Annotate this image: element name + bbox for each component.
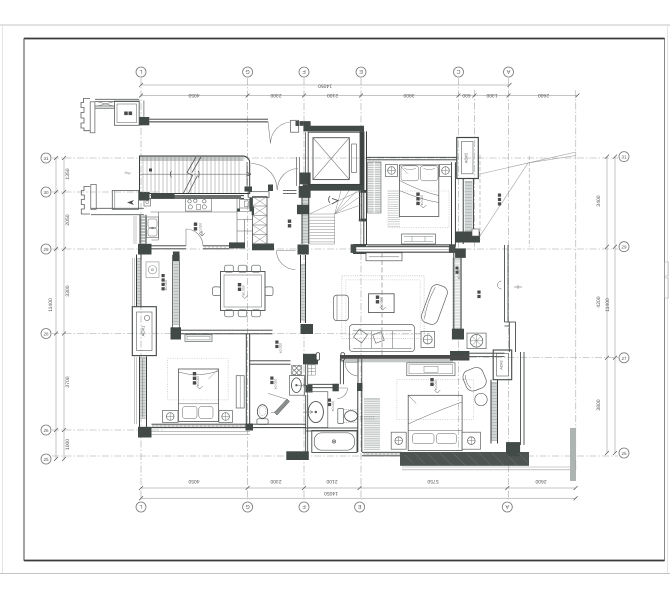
svg-text:4050: 4050: [188, 92, 199, 98]
svg-text:26: 26: [43, 428, 49, 433]
svg-text:L: L: [139, 503, 142, 509]
svg-text:A: A: [505, 503, 509, 509]
svg-text:±0.000: ±0.000: [420, 195, 424, 205]
svg-text:29: 29: [43, 247, 49, 252]
svg-text:600: 600: [462, 92, 471, 98]
svg-text:±0.000: ±0.000: [279, 343, 283, 353]
svg-text:±0.000: ±0.000: [164, 280, 168, 290]
svg-text:5750: 5750: [427, 478, 438, 484]
svg-text:2600: 2600: [538, 92, 549, 98]
svg-text:3400: 3400: [596, 195, 602, 206]
svg-text:E: E: [357, 503, 361, 509]
svg-text:1350: 1350: [65, 168, 71, 179]
svg-text:3700: 3700: [65, 376, 71, 387]
svg-text:±0.000: ±0.000: [196, 376, 200, 386]
svg-text:27: 27: [621, 356, 627, 361]
svg-text:A: A: [506, 68, 510, 74]
svg-text:±0.000: ±0.000: [379, 297, 383, 307]
svg-text:E: E: [359, 68, 363, 74]
svg-text:2300: 2300: [270, 92, 281, 98]
svg-text:L: L: [139, 68, 142, 74]
svg-text:3300: 3300: [65, 285, 71, 296]
svg-text:±0.000: ±0.000: [331, 401, 335, 411]
svg-text:±0.000: ±0.000: [457, 269, 461, 279]
svg-text:C: C: [456, 68, 460, 74]
svg-text:14050: 14050: [324, 490, 338, 496]
svg-text:3800: 3800: [596, 399, 602, 410]
svg-text:11400: 11400: [605, 298, 611, 312]
svg-text:31: 31: [621, 155, 627, 160]
svg-text:±0.000: ±0.000: [434, 380, 438, 390]
svg-text:2100: 2100: [327, 92, 338, 98]
svg-text:2600: 2600: [535, 478, 546, 484]
svg-text:4200: 4200: [596, 296, 602, 307]
svg-text:1300: 1300: [486, 92, 497, 98]
svg-text:3800: 3800: [403, 92, 414, 98]
svg-text:25: 25: [43, 457, 49, 462]
svg-text:AO#1: AO#1: [140, 325, 145, 336]
svg-text:AO#2: AO#2: [499, 360, 503, 369]
svg-text:G: G: [245, 68, 249, 74]
svg-text:1000: 1000: [65, 439, 71, 450]
svg-text:±0.000: ±0.000: [274, 379, 278, 389]
svg-text:2300: 2300: [270, 478, 281, 484]
svg-text:28: 28: [43, 332, 49, 337]
svg-text:14050: 14050: [318, 83, 332, 89]
svg-text:25: 25: [621, 451, 627, 456]
svg-text:±0.000: ±0.000: [241, 285, 245, 295]
svg-text:31: 31: [43, 156, 49, 161]
svg-text:11400: 11400: [48, 298, 54, 312]
svg-text:AO#2: AO#2: [463, 152, 468, 163]
svg-text:4050: 4050: [188, 478, 199, 484]
svg-text:2050: 2050: [65, 214, 71, 225]
svg-text:G: G: [245, 503, 249, 509]
svg-text:2100: 2100: [326, 478, 337, 484]
svg-text:29: 29: [621, 245, 627, 250]
svg-text:30: 30: [43, 190, 49, 195]
